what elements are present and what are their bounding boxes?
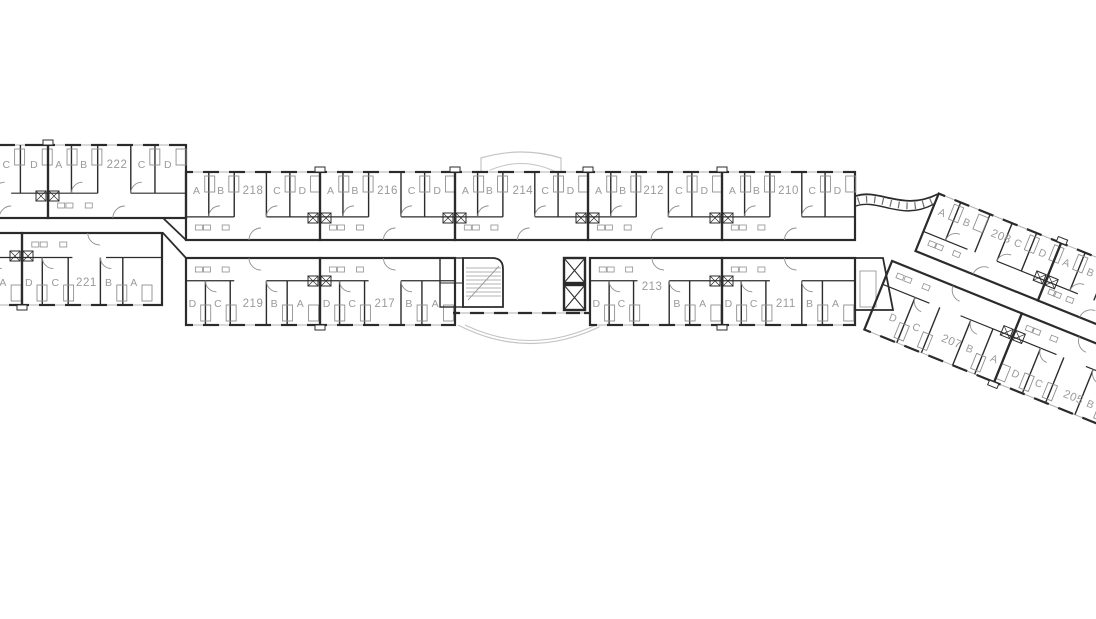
room-letter-label: B (105, 277, 113, 289)
facade-notch (583, 167, 593, 172)
room-letter-label: B (753, 185, 761, 197)
room-letter-label: D (701, 185, 709, 197)
room-letter-label: B (80, 159, 88, 171)
room-letter-label: D (323, 298, 331, 310)
room-letter-label: A (193, 185, 201, 197)
room-letter-label: D (30, 159, 38, 171)
unit-number-label: 217 (374, 298, 395, 310)
floor-plan-svg: CDABCD222ABCD218ABCD216ABCD214ABCD212ABC… (0, 0, 1096, 619)
room-letter-label: D (725, 298, 733, 310)
floor-plan-page: CDABCD222ABCD218ABCD216ABCD214ABCD212ABC… (0, 0, 1096, 619)
unit-number-label: 219 (243, 298, 264, 310)
room-letter-label: D (189, 298, 197, 310)
unit-number-label: 210 (778, 185, 799, 197)
room-letter-label: D (299, 185, 307, 197)
room-letter-label: B (351, 185, 359, 197)
room-letter-label: A (699, 298, 707, 310)
room-letter-label: C (3, 159, 11, 171)
room-letter-label: D (834, 185, 842, 197)
room-letter-label: C (348, 298, 356, 310)
room-letter-label: A (832, 298, 840, 310)
facade-notch (17, 305, 27, 310)
room-letter-label: A (327, 185, 335, 197)
room-letter-label: A (297, 298, 305, 310)
room-letter-label: C (214, 298, 222, 310)
room-letter-label: B (405, 298, 413, 310)
unit-number-label: 222 (107, 159, 128, 171)
room-letter-label: D (25, 277, 33, 289)
room-letter-label: C (808, 185, 816, 197)
room-letter-label: C (138, 159, 146, 171)
facade-notch (717, 325, 727, 330)
room-letter-label: B (673, 298, 681, 310)
facade-notch (43, 140, 53, 145)
room-letter-label: C (541, 185, 549, 197)
facade-notch (450, 167, 460, 172)
unit-number-label: 218 (243, 185, 264, 197)
unit-number-label: 221 (76, 277, 97, 289)
room-letter-label: C (618, 298, 626, 310)
room-letter-label: A (729, 185, 737, 197)
room-letter-label: D (593, 298, 601, 310)
unit-number-label: 213 (642, 281, 663, 293)
room-letter-label: A (130, 277, 138, 289)
room-letter-label: D (433, 185, 441, 197)
plan-background (0, 0, 1096, 619)
facade-notch (315, 167, 325, 172)
room-letter-label: C (675, 185, 683, 197)
facade-notch (717, 167, 727, 172)
room-letter-label: C (52, 277, 60, 289)
room-letter-label: B (217, 185, 225, 197)
room-letter-label: B (271, 298, 279, 310)
room-letter-label: A (55, 159, 63, 171)
room-letter-label: C (273, 185, 281, 197)
unit-number-label: 214 (512, 185, 533, 197)
room-letter-label: D (567, 185, 575, 197)
room-letter-label: C (750, 298, 758, 310)
room-letter-label: C (408, 185, 416, 197)
unit-number-label: 212 (643, 185, 664, 197)
room-letter-label: A (595, 185, 603, 197)
room-letter-label: B (486, 185, 494, 197)
facade-notch (315, 325, 325, 330)
room-letter-label: D (164, 159, 172, 171)
room-letter-label: A (462, 185, 470, 197)
room-letter-label: B (806, 298, 814, 310)
room-letter-label: A (432, 298, 440, 310)
room-letter-label: B (619, 185, 627, 197)
unit-number-label: 211 (776, 298, 796, 310)
room-letter-label: A (0, 277, 7, 289)
unit-number-label: 216 (377, 185, 398, 197)
